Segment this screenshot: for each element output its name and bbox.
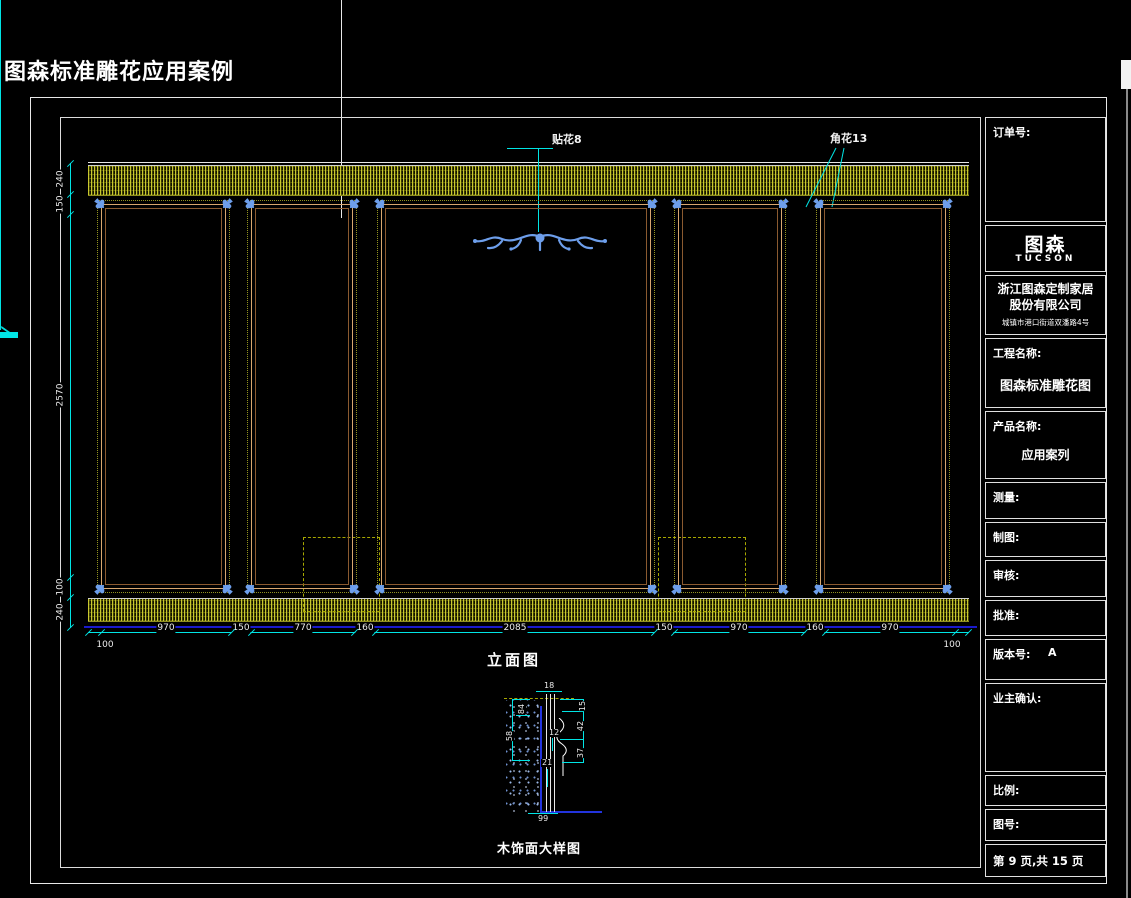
page-title: 图森标准雕花应用案例	[4, 54, 234, 86]
dim-label: 18	[543, 682, 555, 690]
order-no-label: 订单号:	[993, 124, 1030, 140]
detail-layer-line	[554, 694, 555, 812]
dim-extension-line	[0, 285, 1, 300]
dim-extension-line	[0, 15, 1, 30]
scrollbar-track[interactable]	[1126, 88, 1128, 898]
detail-dim-line	[562, 711, 584, 712]
detail-dim-line	[562, 762, 584, 763]
product-label: 产品名称:	[993, 418, 1041, 434]
elevation-caption: 立面图	[487, 649, 541, 670]
panel-molding-inner	[255, 208, 349, 585]
panel-molding-inner	[105, 208, 222, 585]
dim-extension-line	[0, 135, 1, 150]
scrollbar-thumb[interactable]	[1121, 60, 1131, 89]
page-info: 第 9 页,共 15 页	[993, 853, 1083, 869]
titleblock-row-product: 产品名称: 应用案列	[985, 411, 1106, 479]
project-value: 图森标准雕花图	[986, 375, 1105, 394]
dim-extension-line	[0, 30, 1, 45]
dim-extension-line	[0, 240, 1, 255]
dim-label: 58	[506, 731, 514, 741]
cad-canvas: 图森标准雕花应用案例 贴花8 角花13 100	[0, 0, 1131, 898]
dim-extension-line	[0, 165, 1, 180]
dim-extension-line	[0, 60, 1, 75]
project-label: 工程名称:	[993, 345, 1041, 361]
detail-dim-line	[512, 760, 530, 761]
dim-label: 160	[355, 624, 374, 633]
dim-label: 970	[880, 624, 899, 633]
dim-extension-line	[0, 300, 1, 315]
panel-molding-outer	[678, 204, 782, 589]
wall-panel	[247, 200, 357, 593]
titleblock-row-company: 浙江图森定制家居 股份有限公司 城镇市港口街道双潘路4号	[985, 275, 1106, 335]
panel-molding-inner	[385, 208, 647, 585]
floor-line	[84, 626, 977, 628]
dim-label: 42	[577, 721, 585, 731]
dim-label: 12	[548, 729, 560, 737]
dim-label: 99	[537, 815, 549, 823]
titleblock-row-page: 第 9 页,共 15 页	[985, 844, 1106, 877]
detail-layer-line	[550, 694, 551, 812]
company-address: 城镇市港口街道双潘路4号	[986, 317, 1105, 328]
panel-molding-outer	[251, 204, 353, 589]
dim-label: 240	[57, 169, 66, 188]
dim-label: 21	[541, 759, 553, 767]
detail-caption: 木饰面大样图	[497, 838, 581, 857]
panel-molding-outer	[381, 204, 651, 589]
decal-leader-h	[507, 148, 553, 149]
dim-extension-line	[0, 180, 1, 195]
company-logo: 图森	[986, 230, 1105, 257]
titleblock-row-project: 工程名称: 图森标准雕花图	[985, 338, 1106, 408]
panel-molding-inner	[824, 208, 942, 585]
dim-label: 2085	[503, 624, 528, 633]
dim-label: 15	[579, 701, 587, 711]
titleblock-row-approve: 批准:	[985, 600, 1106, 636]
company-name-line2: 股份有限公司	[986, 296, 1105, 313]
titleblock-row-review: 审核:	[985, 560, 1106, 597]
dim-label: 970	[156, 624, 175, 633]
drawing-no-label: 图号:	[993, 816, 1019, 832]
dim-extension-line	[0, 337, 18, 338]
company-name-line1: 浙江图森定制家居	[986, 280, 1105, 297]
titleblock-row-logo: 图森 TUCSON	[985, 225, 1106, 272]
wall-panel	[816, 200, 950, 593]
wall-panel	[97, 200, 230, 593]
dim-extension-line	[0, 0, 1, 15]
wall-panel	[674, 200, 786, 593]
titleblock-row-owner: 业主确认:	[985, 683, 1106, 772]
dim-label: 970	[729, 624, 748, 633]
dim-extension-line	[0, 105, 1, 120]
bottom-dim-line	[88, 632, 969, 633]
panel-molding-outer	[820, 204, 946, 589]
detail-dim-line	[536, 691, 562, 692]
detail-dim-line	[560, 699, 584, 700]
dim-extension-line	[0, 225, 1, 240]
panel-molding-outer	[101, 204, 226, 589]
detail-dim-line	[516, 715, 530, 716]
dim-label: 160	[805, 624, 824, 633]
titleblock-row-scale: 比例:	[985, 775, 1106, 806]
dim-label: 100	[942, 641, 961, 650]
dim-extension-line	[0, 195, 1, 210]
dim-extension-line	[0, 45, 1, 60]
titleblock-row-measure: 测量:	[985, 482, 1106, 519]
titleblock-row-order: 订单号:	[985, 117, 1106, 222]
dim-extension-line	[0, 270, 1, 285]
corner-flower-callout: 角花13	[830, 133, 867, 144]
detail-layer-line	[546, 694, 547, 812]
dim-label: 770	[293, 624, 312, 633]
dim-extension-line	[0, 90, 1, 105]
titleblock-row-version: 版本号: A	[985, 639, 1106, 680]
dim-label: 150	[57, 194, 66, 213]
version-label: 版本号:	[993, 646, 1030, 662]
left-dim-line	[70, 163, 71, 628]
detail-dim-line	[512, 699, 530, 700]
detail-dim-line	[552, 738, 553, 751]
skirting-band	[88, 598, 969, 622]
review-label: 审核:	[993, 567, 1019, 583]
draft-label: 制图:	[993, 529, 1019, 545]
version-value: A	[1048, 646, 1057, 659]
dim-extension-line	[0, 210, 1, 225]
wall-panel	[377, 200, 655, 593]
dim-extension-line	[0, 150, 1, 165]
molding-profile-line	[556, 718, 572, 778]
panel-molding-inner	[682, 208, 778, 585]
titleblock-row-drawingno: 图号:	[985, 809, 1106, 841]
decal-callout: 贴花8	[552, 134, 582, 145]
product-value: 应用案列	[986, 446, 1105, 463]
dim-label: 100	[95, 641, 114, 650]
detail-dim-line	[560, 739, 584, 740]
dim-label: 2570	[57, 383, 66, 408]
dim-extension-line	[0, 255, 1, 270]
scale-label: 比例:	[993, 782, 1019, 798]
dim-label: 84	[518, 704, 526, 714]
measure-label: 测量:	[993, 489, 1019, 505]
company-logo-sub: TUCSON	[986, 254, 1105, 264]
dim-label: 100	[57, 577, 66, 596]
approve-label: 批准:	[993, 607, 1019, 623]
detail-dim-line	[547, 769, 548, 787]
dim-extension-line	[0, 120, 1, 135]
titleblock-row-draft: 制图:	[985, 522, 1106, 557]
dim-label: 240	[57, 602, 66, 621]
dim-label: 37	[577, 748, 585, 758]
owner-label: 业主确认:	[993, 690, 1041, 706]
dim-extension-line	[0, 75, 1, 90]
